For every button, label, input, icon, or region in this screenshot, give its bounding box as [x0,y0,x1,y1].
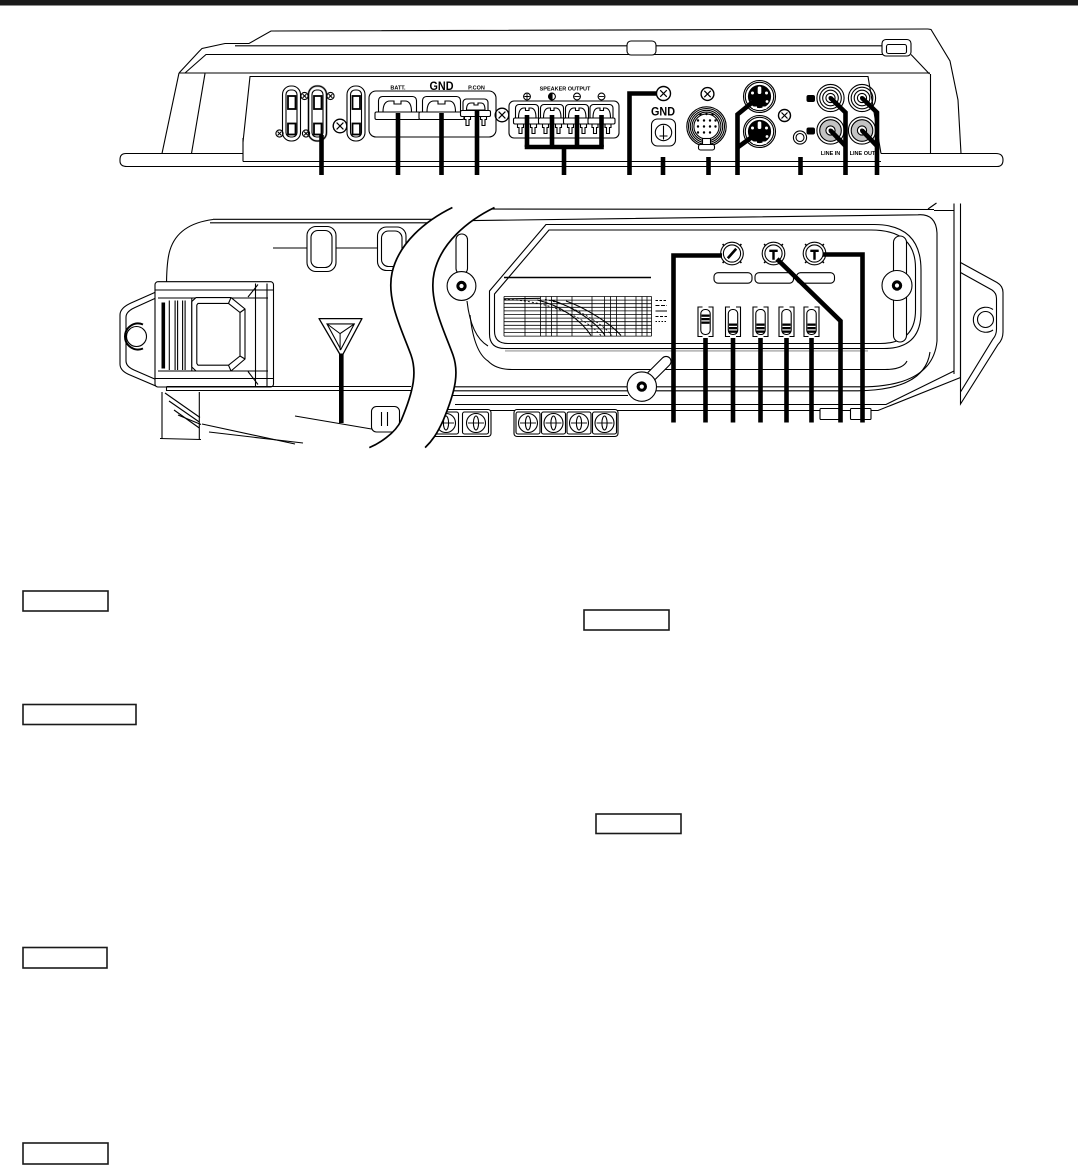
svg-text:GND: GND [430,81,454,93]
svg-text:BATT.: BATT. [390,86,406,92]
svg-text:P.CON: P.CON [468,86,485,92]
svg-text:L: L [809,96,813,103]
svg-text:GND: GND [651,107,675,119]
svg-text:SPEAKER OUTPUT: SPEAKER OUTPUT [540,87,591,93]
svg-text:LINE OUT: LINE OUT [850,151,876,157]
svg-text:R: R [808,129,813,136]
svg-text:LINE IN: LINE IN [821,151,841,157]
